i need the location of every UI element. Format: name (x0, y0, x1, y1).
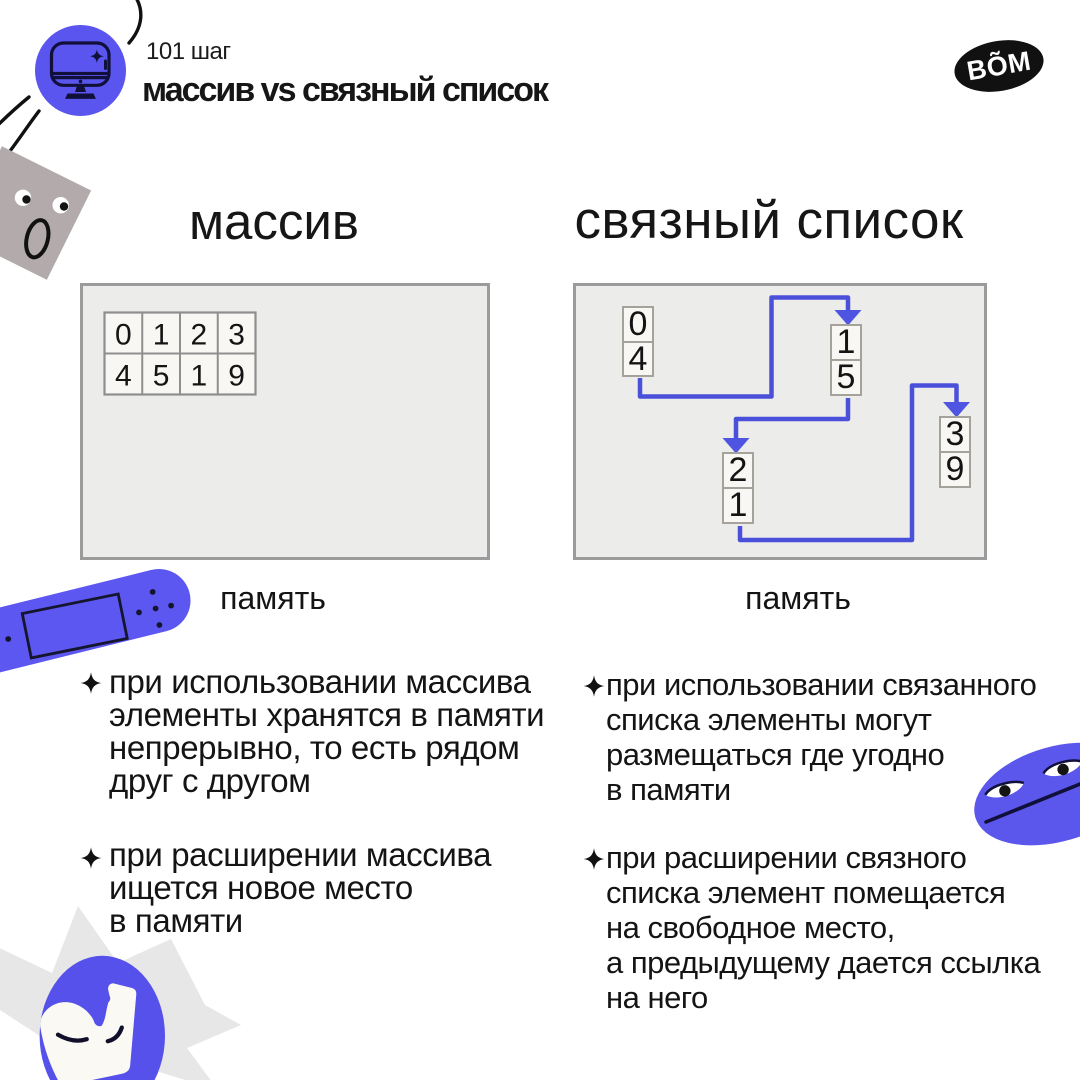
svg-text:1: 1 (153, 319, 170, 352)
svg-text:4: 4 (115, 360, 132, 393)
svg-text:1: 1 (191, 360, 208, 393)
svg-text:0: 0 (115, 319, 132, 352)
svg-text:5: 5 (153, 360, 170, 393)
svg-text:3: 3 (228, 319, 245, 352)
svg-text:2: 2 (191, 319, 208, 352)
svg-text:9: 9 (228, 360, 245, 393)
